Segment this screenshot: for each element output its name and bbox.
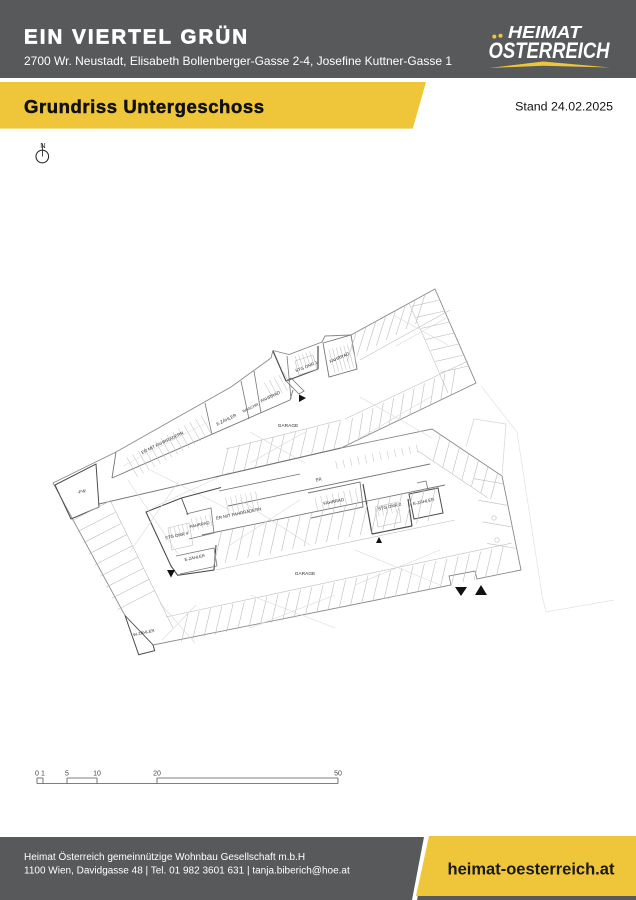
svg-text:FAHRRAD: FAHRRAD — [260, 390, 281, 404]
svg-text:GARAGE: GARAGE — [278, 423, 299, 429]
svg-text:2700 Wr. Neustadt, Elisabeth B: 2700 Wr. Neustadt, Elisabeth Bollenberge… — [24, 54, 452, 68]
svg-text:Heimat Österreich gemeinnützig: Heimat Österreich gemeinnützige Wohnbau … — [24, 851, 305, 863]
svg-text:20: 20 — [153, 771, 161, 778]
svg-text:FAHRRAD: FAHRRAD — [189, 520, 210, 529]
svg-text:10: 10 — [93, 771, 101, 778]
svg-text:E-ZÄHLER: E-ZÄHLER — [184, 553, 205, 562]
svg-text:OSTERREICH: OSTERREICH — [489, 38, 611, 63]
svg-text:heimat-oesterreich.at: heimat-oesterreich.at — [448, 861, 615, 879]
svg-text:W-ZÄHLER: W-ZÄHLER — [133, 628, 155, 637]
svg-text:1: 1 — [41, 771, 45, 778]
svg-text:STG ONR 1: STG ONR 1 — [295, 360, 319, 374]
svg-text:STG ONR 4: STG ONR 4 — [165, 531, 190, 541]
svg-text:Grundriss Untergeschoss: Grundriss Untergeschoss — [24, 96, 264, 117]
svg-text:WASCHR: WASCHR — [242, 402, 260, 414]
svg-text:-FW: -FW — [77, 488, 87, 495]
svg-text:ER MIT FAHRRÄDERN: ER MIT FAHRRÄDERN — [216, 506, 262, 521]
svg-text:5: 5 — [65, 771, 69, 778]
svg-text:1100 Wien, Davidgasse 48 | Tel: 1100 Wien, Davidgasse 48 | Tel. 01 982 3… — [24, 866, 350, 877]
svg-text:N: N — [40, 141, 45, 150]
svg-text:STG ONR 2: STG ONR 2 — [378, 502, 403, 512]
svg-text:FAHRRAD: FAHRRAD — [323, 497, 345, 506]
svg-text:0: 0 — [35, 771, 39, 778]
svg-text:ER: ER — [315, 476, 322, 482]
svg-text:Stand 24.02.2025: Stand 24.02.2025 — [515, 100, 613, 114]
svg-text:50: 50 — [334, 771, 342, 778]
svg-text:GARAGE: GARAGE — [295, 571, 316, 577]
